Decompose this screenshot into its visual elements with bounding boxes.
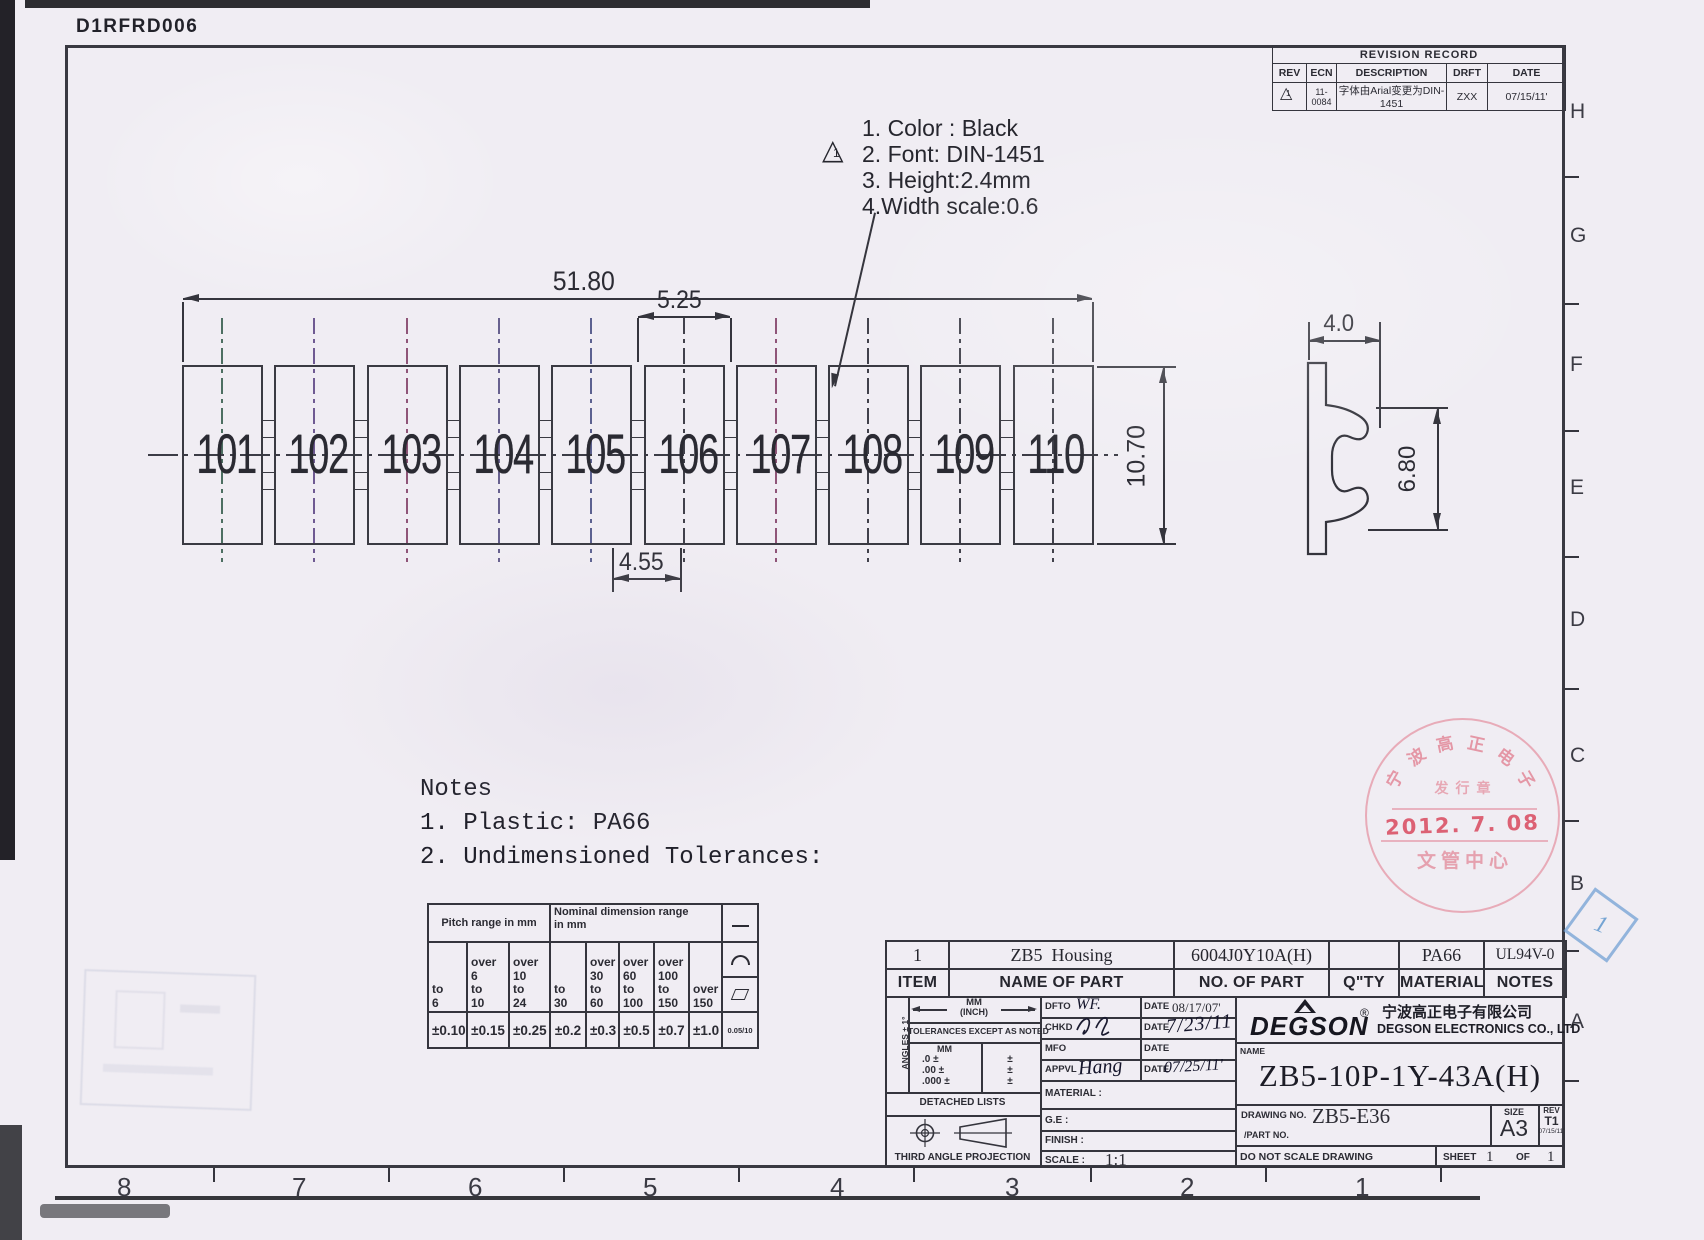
name-label: NAME xyxy=(1240,1046,1265,1056)
scan-smudge xyxy=(40,1204,170,1218)
rev-date-value: 07/15/11' xyxy=(1538,1128,1565,1135)
connector-tab xyxy=(815,420,830,438)
connector-tab xyxy=(999,472,1014,490)
scan-edge-left-bottom xyxy=(0,1125,22,1240)
zone-label: 8 xyxy=(117,1172,131,1203)
marker-number: 109 xyxy=(934,421,986,486)
parts-header-notes: NOTES xyxy=(1484,969,1566,997)
tol-value: ±0.25 xyxy=(509,1012,550,1048)
third-angle-projection-icon xyxy=(902,1116,1032,1152)
parts-header-no: NO. OF PART xyxy=(1174,969,1329,997)
ecn-col-header: ECN xyxy=(1307,64,1337,83)
connector-tab xyxy=(538,420,553,438)
rev-value: T1 xyxy=(1538,1114,1565,1128)
zone-label: H xyxy=(1570,100,1585,124)
callout-flag-number: 1 xyxy=(833,146,840,160)
parts-header-material: MATERIAL xyxy=(1399,969,1484,997)
stamp-arc-char: 电 xyxy=(1492,740,1520,770)
tol-range: over 30 to 60 xyxy=(586,942,619,1012)
stamp-rule xyxy=(1392,808,1537,810)
ge-label: G.E : xyxy=(1045,1115,1068,1126)
sheet-label: SHEET xyxy=(1443,1152,1476,1163)
doc-code: D1RFRD006 xyxy=(76,16,198,38)
degson-logo-text: DEGSON xyxy=(1250,1011,1369,1042)
marker-number: 110 xyxy=(1027,421,1079,486)
zone-label: 7 xyxy=(292,1172,306,1203)
of-value: 1 xyxy=(1547,1149,1555,1166)
marker-cell: 104 xyxy=(459,365,540,545)
registered-mark: ® xyxy=(1360,1006,1369,1020)
callout-line: 3. Height:2.4mm xyxy=(862,167,1031,194)
callout-line: 4.Width scale:0.6 xyxy=(862,193,1038,220)
chkd-signature xyxy=(1072,1012,1120,1040)
left-arrowhead-icon xyxy=(911,1006,920,1012)
marker-number: 102 xyxy=(288,421,340,486)
right-arrowhead-icon xyxy=(1028,1006,1037,1012)
dim-text: 4.55 xyxy=(619,548,664,577)
marker-number: 103 xyxy=(381,421,433,486)
notes-title: Notes xyxy=(420,776,492,803)
dim-text: 6.80 xyxy=(1394,439,1422,499)
part-qty xyxy=(1329,941,1399,969)
tol-row: .000 ± xyxy=(922,1076,950,1087)
tol-range: over 6 to 10 xyxy=(467,942,509,1012)
zone-label: E xyxy=(1570,476,1584,500)
rev-flag-number: 1 xyxy=(1286,89,1290,98)
projection-label: THIRD ANGLE PROJECTION xyxy=(885,1152,1040,1163)
note-item: 1. Plastic: PA66 xyxy=(420,810,650,837)
marker-cell: 107 xyxy=(736,365,817,545)
connector-tab xyxy=(446,420,461,438)
sheet-value: 1 xyxy=(1486,1149,1494,1166)
stamp-subtitle: 发行章 xyxy=(1367,778,1558,798)
tol-value: ±0.15 xyxy=(467,1012,509,1048)
zone-label: 4 xyxy=(830,1172,844,1203)
tol-value: ±0.3 xyxy=(586,1012,619,1048)
tol-row: .0 ± xyxy=(922,1054,939,1065)
date-value: 07/25/11' xyxy=(1164,1056,1224,1077)
tol-flat-value: 0.05/10 xyxy=(722,1012,758,1048)
scale-value: 1:1 xyxy=(1105,1150,1127,1170)
rev-date: 07/15/11' xyxy=(1488,83,1566,111)
date-label: DATE xyxy=(1144,1043,1169,1054)
tol-range: over 10 to 24 xyxy=(509,942,550,1012)
connector-tab xyxy=(630,472,645,490)
dim-text: 4.0 xyxy=(1323,310,1354,338)
tol-range: over 60 to 100 xyxy=(619,942,654,1012)
connector-tab xyxy=(353,420,368,438)
part-name: ZB5 Housing xyxy=(949,941,1174,969)
zone-label: 3 xyxy=(1005,1172,1019,1203)
tolerances-note: TOLERANCES EXCEPT AS NOTED xyxy=(908,1026,1040,1036)
tol-value: ±0.10 xyxy=(428,1012,467,1048)
stamp-date: 2012. 7. 08 xyxy=(1367,810,1559,841)
marker-cell: 110 xyxy=(1013,365,1094,545)
connector-tab xyxy=(353,472,368,490)
tol-value: ±0.5 xyxy=(619,1012,654,1048)
mfo-label: MFO xyxy=(1045,1043,1066,1054)
company-name-cn: 宁波高正电子有限公司 xyxy=(1382,1001,1532,1022)
rev-flag-cell: △ 1 xyxy=(1273,83,1307,111)
tol-value: ±0.7 xyxy=(654,1012,689,1048)
zone-label: 5 xyxy=(643,1172,657,1203)
stamp-arc-char: 高 xyxy=(1434,729,1456,757)
parts-header-qty: Q"TY xyxy=(1329,969,1399,997)
drawing-no-label: DRAWING NO. xyxy=(1241,1110,1306,1121)
marker-cell: 105 xyxy=(551,365,632,545)
tol-pm: ± xyxy=(981,1065,1039,1076)
part-material: PA66 xyxy=(1399,941,1484,969)
part-no: 6004J0Y10A(H) xyxy=(1174,941,1329,969)
zone-label: 1 xyxy=(1355,1172,1369,1203)
connector-tab xyxy=(723,472,738,490)
connector-tab xyxy=(261,472,276,490)
size-value: A3 xyxy=(1490,1115,1538,1142)
rev-ecn: 11-0084 xyxy=(1307,83,1337,111)
scanned-engineering-drawing: D1RFRD006 H G F E D C B A 8 7 6 5 4 3 2 … xyxy=(0,0,1704,1240)
tol-mm-label: MM xyxy=(908,1044,981,1054)
dim-text: 5.25 xyxy=(657,286,702,315)
scale-label: SCALE : xyxy=(1045,1155,1085,1166)
marker-cell: 103 xyxy=(367,365,448,545)
parts-header-name: NAME OF PART xyxy=(949,969,1174,997)
blue-tag-number: 1 xyxy=(1573,904,1628,947)
callout-line: 1. Color : Black xyxy=(862,115,1018,142)
appvl-label: APPVL xyxy=(1045,1064,1077,1075)
material-label: MATERIAL : xyxy=(1045,1088,1102,1099)
marker-number: 101 xyxy=(196,421,248,486)
straightness-symbol-icon xyxy=(722,904,758,942)
rev-description: 字体由Arial变更为DIN-1451 xyxy=(1337,83,1447,111)
tol-value: ±1.0 xyxy=(689,1012,722,1048)
marker-number: 106 xyxy=(658,421,710,486)
marker-cell: 109 xyxy=(920,365,1001,545)
side-profile-view xyxy=(1298,353,1448,565)
red-approval-stamp: 宁 波 高 正 电 子 发行章 2012. 7. 08 文管中心 xyxy=(1365,718,1560,913)
zone-label: F xyxy=(1570,353,1583,377)
marker-cell: 102 xyxy=(274,365,355,545)
dfto-label: DFTO xyxy=(1045,1001,1071,1012)
tol-pm: ± xyxy=(981,1054,1039,1065)
drft-col-header: DRFT xyxy=(1447,64,1488,83)
tol-range: over 100 to 150 xyxy=(654,942,689,1012)
tol-pitch-header: Pitch range in mm xyxy=(428,904,550,942)
parts-list-table: 1 ZB5 Housing 6004J0Y10A(H) PA66 UL94V-0… xyxy=(885,940,1567,998)
marker-number: 105 xyxy=(565,421,617,486)
tolerance-table: Pitch range in mm Nominal dimension rang… xyxy=(427,903,759,1049)
zone-label: G xyxy=(1570,224,1586,248)
appvl-signature: Hang xyxy=(1077,1054,1123,1080)
callout-line: 2. Font: DIN-1451 xyxy=(862,141,1045,168)
stamp-bottom-text: 文管中心 xyxy=(1367,846,1558,873)
connector-tab xyxy=(999,420,1014,438)
connector-tab xyxy=(907,472,922,490)
tol-range: over 150 xyxy=(689,942,722,1012)
zone-label: 6 xyxy=(468,1172,482,1203)
zone-label: B xyxy=(1570,872,1584,896)
part-notes: UL94V-0 xyxy=(1484,941,1566,969)
detached-lists: DETACHED LISTS xyxy=(885,1097,1040,1108)
part-no-label: /PART NO. xyxy=(1244,1130,1289,1140)
tol-range: to 6 xyxy=(428,942,467,1012)
marker-cell: 101 xyxy=(182,365,263,545)
zone-label: C xyxy=(1570,744,1585,768)
scan-edge-left xyxy=(0,0,15,860)
stamp-rule xyxy=(1381,840,1548,842)
of-label: OF xyxy=(1516,1152,1530,1163)
flatness-symbol-icon xyxy=(723,978,757,1011)
note-item: 2. Undimensioned Tolerances: xyxy=(420,844,823,871)
dim-text: 51.80 xyxy=(553,266,615,297)
connector-tab xyxy=(815,472,830,490)
company-name-en: DEGSON ELECTRONICS CO., LTD xyxy=(1377,1022,1580,1036)
revision-title: REVISION RECORD xyxy=(1273,46,1566,64)
tol-nominal-header: Nominal dimension range in mm xyxy=(550,904,722,942)
rev-drft: ZXX xyxy=(1447,83,1488,111)
tol-value: ±0.2 xyxy=(550,1012,586,1048)
zone-label: D xyxy=(1570,608,1585,632)
stamp-arc-char: 正 xyxy=(1466,729,1488,757)
part-name-title: ZB5-10P-1Y-43A(H) xyxy=(1235,1058,1565,1094)
tol-range: to 30 xyxy=(550,942,586,1012)
arc-symbol-icon xyxy=(723,943,757,978)
finish-label: FINISH : xyxy=(1045,1135,1084,1146)
chkd-label: CHKD xyxy=(1045,1022,1072,1033)
rev-col-header: REV xyxy=(1273,64,1307,83)
revision-record-table: REVISION RECORD REV ECN DESCRIPTION DRFT… xyxy=(1272,45,1566,111)
connector-tab xyxy=(723,420,738,438)
connector-tab xyxy=(261,420,276,438)
marker-number: 107 xyxy=(750,421,802,486)
stamp-arc-char: 波 xyxy=(1401,740,1429,770)
no-scale-note: DO NOT SCALE DRAWING xyxy=(1240,1151,1373,1163)
connector-tab xyxy=(630,420,645,438)
dim-text: 10.70 xyxy=(1123,428,1152,488)
drawing-no-value: ZB5-E36 xyxy=(1312,1104,1390,1129)
marker-cell: 106 xyxy=(644,365,725,545)
connector-tab xyxy=(538,472,553,490)
date-label: DATE xyxy=(1144,1001,1169,1012)
parts-header-item: ITEM xyxy=(886,969,949,997)
tol-row: .00 ± xyxy=(922,1065,944,1076)
zone-label: 2 xyxy=(1180,1172,1194,1203)
date-col-header: DATE xyxy=(1488,64,1566,83)
scan-edge-top xyxy=(25,0,870,8)
desc-col-header: DESCRIPTION xyxy=(1337,64,1447,83)
scan-edge-bottom xyxy=(55,1196,1480,1200)
marker-number: 104 xyxy=(473,421,525,486)
marker-cell: 108 xyxy=(828,365,909,545)
tol-pm: ± xyxy=(981,1076,1039,1087)
part-item: 1 xyxy=(886,941,949,969)
connector-tab xyxy=(446,472,461,490)
marker-number: 108 xyxy=(842,421,894,486)
connector-tab xyxy=(907,420,922,438)
